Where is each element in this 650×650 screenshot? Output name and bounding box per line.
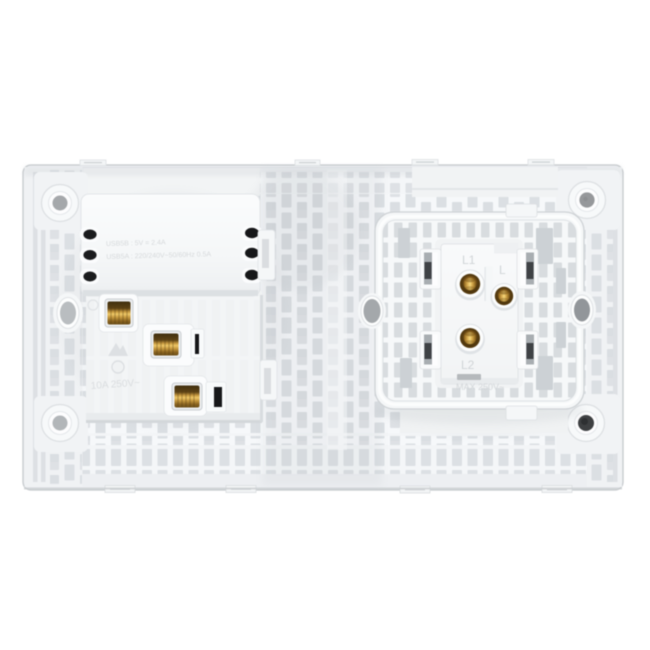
svg-text:L: L [499,263,506,277]
svg-text:L2: L2 [461,358,475,372]
svg-text:L1: L1 [462,253,476,267]
svg-text:MAX 250V~: MAX 250V~ [456,382,504,392]
